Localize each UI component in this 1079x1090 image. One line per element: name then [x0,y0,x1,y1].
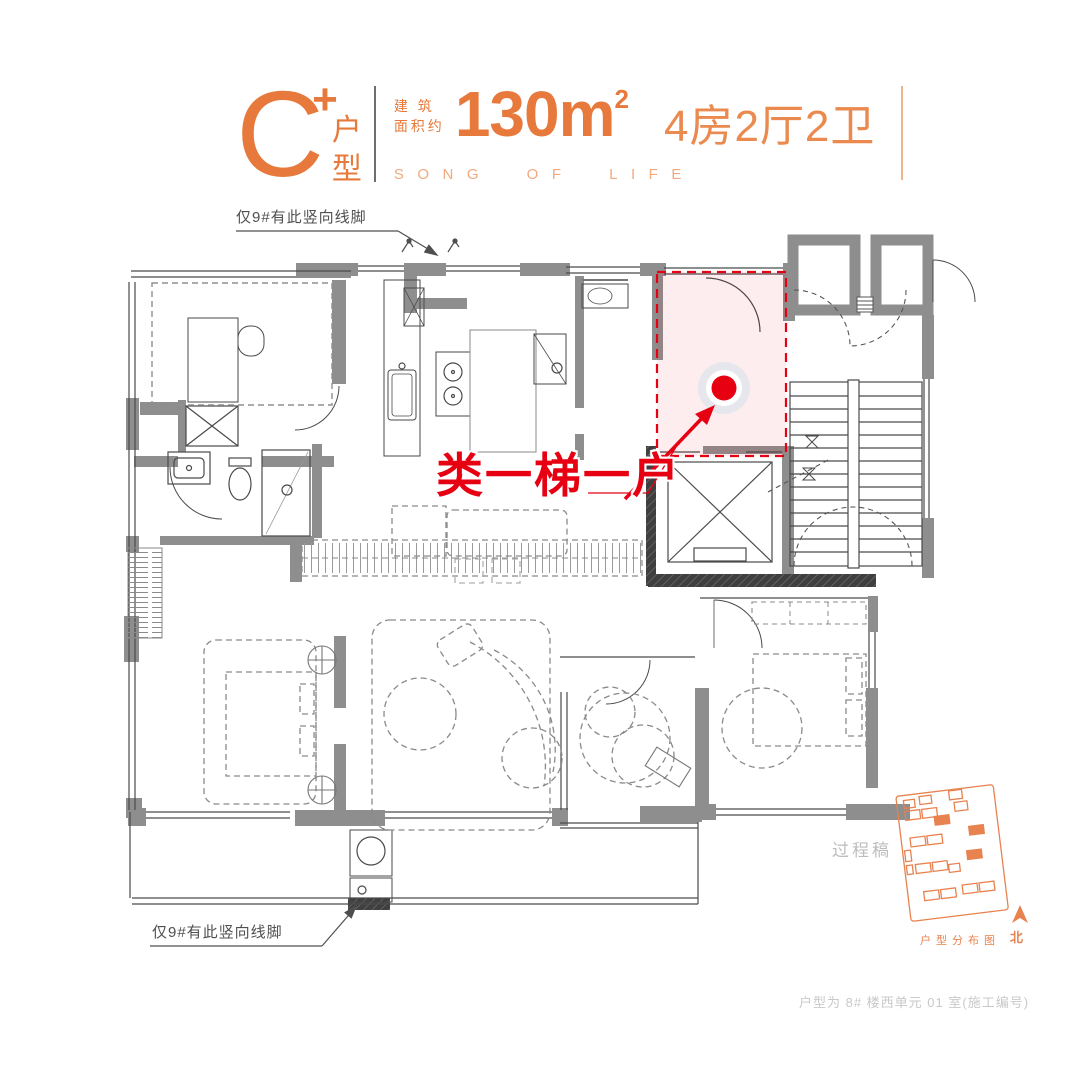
top-note: 仅9#有此竖向线脚 [236,206,367,227]
dark-wall-strips [348,446,876,910]
draft-watermark: 过程稿 [832,836,892,861]
inset-caption: 户型分布图 [920,932,1000,948]
location-dot [712,376,737,401]
footer-note: 户型为 8# 楼西单元 01 室(施工编号) [799,992,1029,1011]
shaft-grille [857,297,873,312]
site-plan-inset [896,784,1009,921]
small-furniture [308,646,691,804]
north-label: 北 [1010,927,1023,946]
annotation-leaders [150,231,459,946]
north-arrow-icon [1012,905,1028,923]
bottom-note: 仅9#有此竖向线脚 [152,921,283,942]
highlight-label: 类一梯一户 [436,437,681,506]
